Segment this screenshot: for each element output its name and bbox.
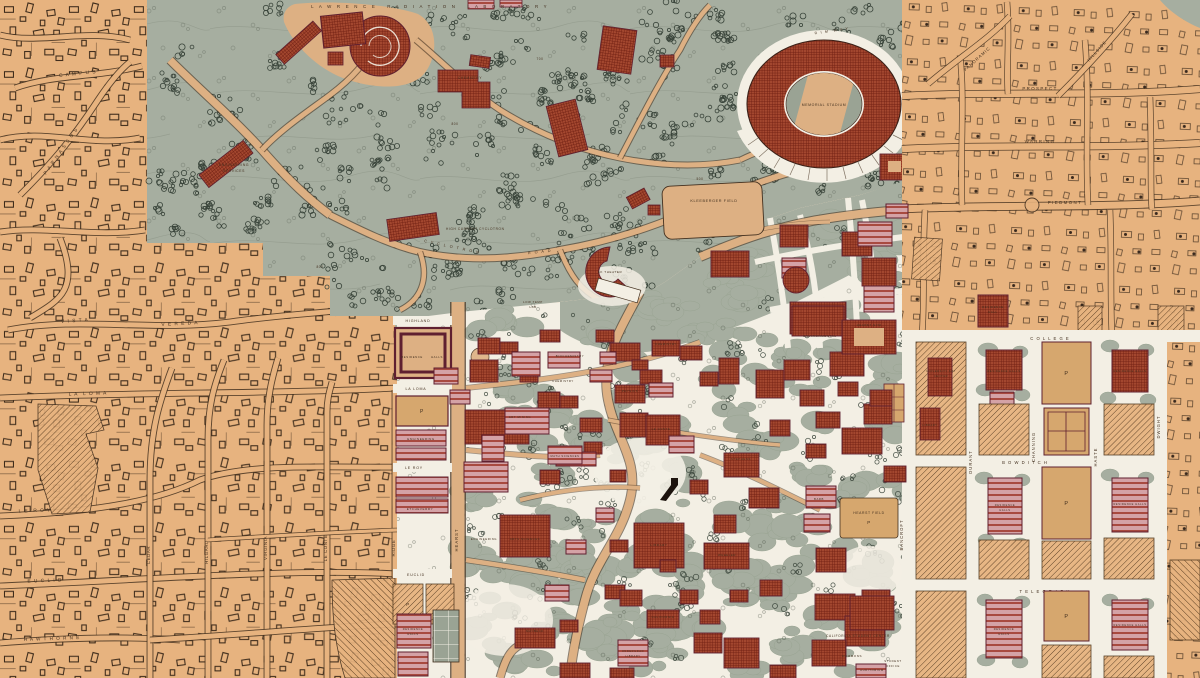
svg-text:P: P xyxy=(1064,501,1068,507)
svg-text:PROSPECT: PROSPECT xyxy=(1022,86,1057,91)
svg-text:HIGHLAND: HIGHLAND xyxy=(406,319,431,323)
svg-text:HIGH CURRENT CYCLOTRON: HIGH CURRENT CYCLOTRON xyxy=(446,227,505,231)
svg-text:RESIDENCE: RESIDENCE xyxy=(995,503,1016,507)
svg-text:C O L L E G E: C O L L E G E xyxy=(1030,336,1069,341)
svg-text:PHYSICS: PHYSICS xyxy=(622,389,638,393)
svg-text:LIBRARY: LIBRARY xyxy=(922,423,937,427)
svg-text:ETCHEVERRY: ETCHEVERRY xyxy=(407,507,433,511)
svg-text:RESIDENCE: RESIDENCE xyxy=(982,305,1004,309)
svg-text:UNIVERSITY ART: UNIVERSITY ART xyxy=(926,369,956,373)
svg-text:ENGINEERING: ENGINEERING xyxy=(407,437,435,441)
svg-text:HALLS: HALLS xyxy=(998,632,1009,636)
svg-text:OFFICE: OFFICE xyxy=(886,664,900,668)
svg-text:WHEELER: WHEELER xyxy=(718,553,736,557)
svg-text:CHEMISTRY: CHEMISTRY xyxy=(655,342,677,346)
svg-text:L E R O Y: L E R O Y xyxy=(19,507,52,514)
svg-text:MATH SCIENCES: MATH SCIENCES xyxy=(551,454,580,458)
svg-text:RESIDENCE HALLS: RESIDENCE HALLS xyxy=(1113,502,1146,506)
svg-text:CALIFORNIA STUDENT CENTER: CALIFORNIA STUDENT CENTER xyxy=(826,634,890,638)
svg-text:HALLS: HALLS xyxy=(999,508,1010,512)
svg-text:P: P xyxy=(867,520,871,525)
svg-text:MAYBECK: MAYBECK xyxy=(526,629,544,633)
svg-text:LIBRARY: LIBRARY xyxy=(651,543,668,547)
svg-text:ENGINEERING: ENGINEERING xyxy=(219,163,249,167)
svg-text:LAB: LAB xyxy=(529,305,536,309)
svg-text:EK THEATER: EK THEATER xyxy=(598,270,623,274)
svg-text:P: P xyxy=(1064,614,1068,620)
svg-text:KLEEBERGER FIELD: KLEEBERGER FIELD xyxy=(690,199,737,203)
svg-text:VIRGINIA: VIRGINIA xyxy=(263,536,268,560)
svg-text:COMMONS: COMMONS xyxy=(842,654,862,658)
svg-text:HEARST: HEARST xyxy=(454,529,459,552)
svg-text:LA LOMA: LA LOMA xyxy=(406,387,427,391)
svg-text:STUDENT: STUDENT xyxy=(884,659,901,663)
svg-text:MEMORIAL STADIUM: MEMORIAL STADIUM xyxy=(802,103,847,107)
svg-text:LE ROY: LE ROY xyxy=(405,466,423,470)
svg-text:RESIDENCE: RESIDENCE xyxy=(994,627,1015,631)
svg-text:P: P xyxy=(406,602,410,607)
svg-text:BIOCHEMISTRY: BIOCHEMISTRY xyxy=(556,354,584,358)
svg-text:LE CONTE: LE CONTE xyxy=(652,427,671,431)
svg-text:E U C L I D: E U C L I D xyxy=(27,577,62,584)
svg-text:CHEMISTRY: CHEMISTRY xyxy=(552,379,574,383)
svg-text:L A W R E N C E R A D I A T: L A W R E N C E R A D I A T I O N L A B … xyxy=(311,4,549,9)
svg-text:PIEDMONT: PIEDMONT xyxy=(1048,200,1082,205)
svg-text:ART MINING: ART MINING xyxy=(509,415,531,419)
svg-text:RESIDENCE HALLS: RESIDENCE HALLS xyxy=(1113,623,1146,627)
svg-text:RESIDENCE: RESIDENCE xyxy=(403,627,424,631)
svg-text:CENTER: CENTER xyxy=(934,374,948,378)
svg-text:WARRING: WARRING xyxy=(1025,139,1056,144)
svg-text:STEPHENS: STEPHENS xyxy=(731,457,751,461)
svg-text:ARTS SCIENCES: ARTS SCIENCES xyxy=(510,537,540,541)
svg-text:LIBRARY: LIBRARY xyxy=(625,654,640,658)
svg-text:EUCLID: EUCLID xyxy=(407,573,425,577)
svg-text:BANCROFT: BANCROFT xyxy=(899,519,904,550)
svg-text:CEDAR: CEDAR xyxy=(146,546,151,564)
svg-text:HALLS: HALLS xyxy=(407,632,418,636)
svg-text:P: P xyxy=(420,409,424,415)
svg-text:BARB: BARB xyxy=(814,497,824,501)
svg-text:HASTE: HASTE xyxy=(1093,448,1098,467)
svg-text:AUDITORIUM: AUDITORIUM xyxy=(860,668,884,672)
svg-text:HALL: HALL xyxy=(988,310,997,314)
svg-text:HEARST FIELD: HEARST FIELD xyxy=(853,511,884,515)
svg-text:HALLS: HALLS xyxy=(431,355,443,359)
svg-text:SERVICES: SERVICES xyxy=(223,169,245,173)
svg-text:RESIDENCE: RESIDENCE xyxy=(401,355,423,359)
svg-text:LE CONTE: LE CONTE xyxy=(323,535,328,562)
svg-text:B O W D I T C H: B O W D I T C H xyxy=(1002,460,1048,465)
svg-text:HILGARD: HILGARD xyxy=(204,540,209,564)
svg-text:ENVIRONMENTAL: ENVIRONMENTAL xyxy=(803,334,836,338)
svg-text:DURANT: DURANT xyxy=(968,450,973,473)
svg-text:CHANNING: CHANNING xyxy=(1031,432,1036,462)
svg-text:ENGINEERING: ENGINEERING xyxy=(471,537,497,541)
svg-text:LOW TEMP: LOW TEMP xyxy=(523,300,543,304)
svg-text:HEARST GYM: HEARST GYM xyxy=(857,323,882,327)
svg-text:CHEMISTRY: CHEMISTRY xyxy=(458,76,482,80)
svg-text:UNDERGRAD: UNDERGRAD xyxy=(622,649,644,653)
svg-text:RIDGE: RIDGE xyxy=(391,540,396,557)
svg-text:RESIDENCE HALLS: RESIDENCE HALLS xyxy=(987,369,1020,373)
svg-text:P: P xyxy=(1064,371,1068,377)
svg-text:RESIDENCE HALLS: RESIDENCE HALLS xyxy=(1113,369,1146,373)
svg-text:CALIFORNIA: CALIFORNIA xyxy=(652,615,675,619)
svg-text:DWIGHT: DWIGHT xyxy=(1156,416,1161,439)
